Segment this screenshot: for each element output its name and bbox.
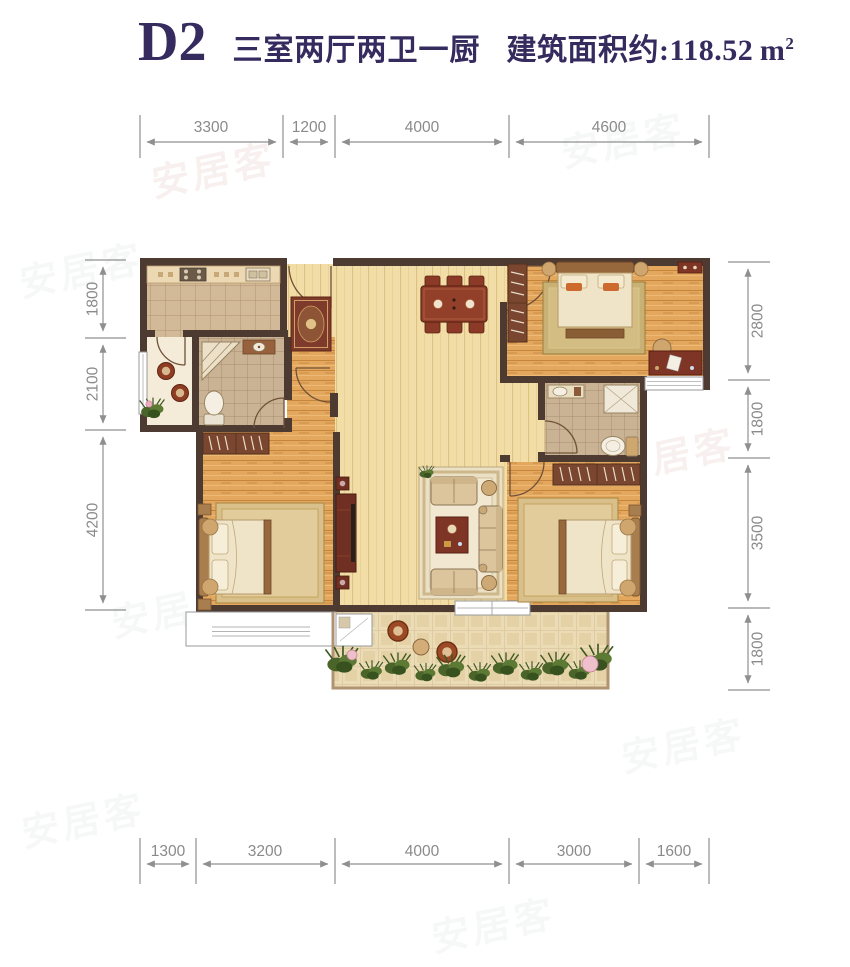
side-table-icon <box>482 576 497 591</box>
dimension-labels-top: 3300 1200 4000 4600 <box>194 119 627 136</box>
svg-text:4000: 4000 <box>405 119 440 136</box>
dimension-labels-bottom: 1300 3200 4000 3000 1600 <box>151 843 692 860</box>
stove-icon <box>180 268 206 281</box>
bed-icon <box>198 504 271 610</box>
entry-rug <box>291 297 331 351</box>
side-table-icon <box>482 481 497 496</box>
dresser-icon <box>678 262 702 273</box>
toilet-icon <box>601 437 638 457</box>
laundry-box-icon <box>336 614 372 646</box>
svg-text:4200: 4200 <box>85 502 102 537</box>
sofa-icon <box>479 506 502 572</box>
svg-text:1600: 1600 <box>657 843 692 860</box>
svg-text:3200: 3200 <box>248 843 283 860</box>
svg-text:3300: 3300 <box>194 119 229 136</box>
svg-text:1300: 1300 <box>151 843 186 860</box>
toilet-icon <box>204 391 224 425</box>
svg-text:3000: 3000 <box>557 843 592 860</box>
dining-set <box>421 276 487 333</box>
bay-window <box>186 612 336 646</box>
svg-text:2800: 2800 <box>750 303 767 338</box>
dimension-labels-left: 1800 2100 4200 <box>85 281 102 537</box>
shower-icon <box>604 385 638 413</box>
svg-text:2100: 2100 <box>85 366 102 401</box>
coffee-table-icon <box>436 517 468 553</box>
floorplan-svg: 3300 1200 4000 4600 1300 3200 4000 3000 … <box>0 0 850 967</box>
svg-text:1800: 1800 <box>750 631 767 666</box>
washbasin-icon <box>548 385 584 398</box>
washbasin-icon <box>243 340 275 354</box>
wardrobe-icon <box>508 264 527 342</box>
floorplan-page: 安居客 安居客 安居客 安居客 安居客 安居客 安居客 安居客 安居客 D2 三… <box>0 0 850 967</box>
dimension-labels-right: 2800 1800 3500 1800 <box>750 303 767 666</box>
bed-icon <box>542 262 648 338</box>
loveseat-bottom-icon <box>431 569 477 595</box>
svg-text:4000: 4000 <box>405 843 440 860</box>
loveseat-top-icon <box>431 477 477 505</box>
svg-text:1800: 1800 <box>750 401 767 436</box>
terrace-table-icon <box>413 639 429 655</box>
tv-cabinet-icon <box>336 477 356 589</box>
svg-text:1800: 1800 <box>85 281 102 316</box>
dining-table-icon <box>421 286 487 322</box>
wardrobe-icon <box>203 433 269 454</box>
master-window <box>645 377 703 390</box>
kitchen-furniture <box>147 266 280 283</box>
svg-text:4600: 4600 <box>592 119 627 136</box>
terrace-sliding-door <box>455 601 530 615</box>
kitchen-sink-icon <box>246 268 270 281</box>
svg-text:1200: 1200 <box>292 119 327 136</box>
svg-text:3500: 3500 <box>750 515 767 550</box>
wardrobe-icon <box>553 464 640 485</box>
